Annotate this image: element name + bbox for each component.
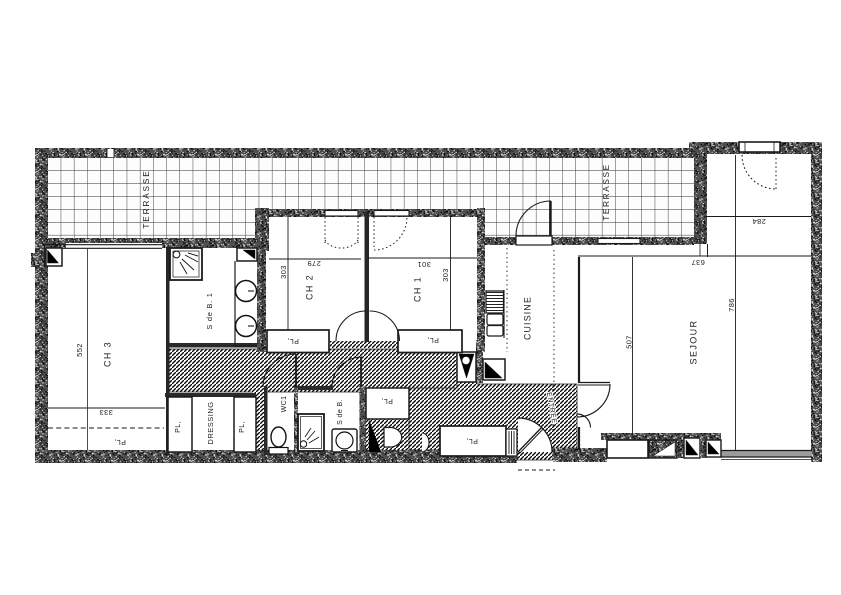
svg-text:S de B.: S de B. (337, 399, 344, 425)
svg-text:PL,: PL, (381, 397, 393, 404)
svg-text:CH 1: CH 1 (412, 276, 422, 302)
svg-text:CH 2: CH 2 (304, 274, 314, 300)
svg-text:507: 507 (624, 335, 633, 349)
svg-text:279: 279 (307, 259, 321, 268)
svg-text:PL,: PL, (175, 421, 182, 433)
svg-text:TERRASSE: TERRASSE (601, 163, 611, 221)
svg-text:637: 637 (691, 258, 705, 267)
svg-text:301: 301 (417, 260, 431, 269)
svg-text:WC1: WC1 (281, 396, 288, 413)
svg-text:PL,: PL, (466, 437, 478, 444)
svg-text:786: 786 (727, 298, 736, 312)
svg-text:S de B. 1: S de B. 1 (205, 292, 214, 329)
svg-text:303: 303 (279, 265, 288, 279)
svg-text:PL,: PL, (287, 337, 299, 344)
svg-text:SEJOUR: SEJOUR (688, 320, 698, 365)
svg-text:284: 284 (752, 217, 766, 226)
svg-text:333: 333 (99, 408, 113, 417)
svg-text:PL,: PL, (239, 421, 246, 433)
svg-text:CH 3: CH 3 (102, 341, 112, 367)
svg-text:DRESSING: DRESSING (206, 401, 215, 444)
svg-text:TERRASSE: TERRASSE (141, 169, 151, 228)
svg-text:552: 552 (75, 343, 84, 357)
svg-text:PL,: PL, (427, 336, 439, 343)
svg-text:CUISINE: CUISINE (522, 296, 532, 340)
svg-text:303: 303 (441, 268, 450, 282)
svg-text:PL,: PL, (114, 438, 126, 445)
